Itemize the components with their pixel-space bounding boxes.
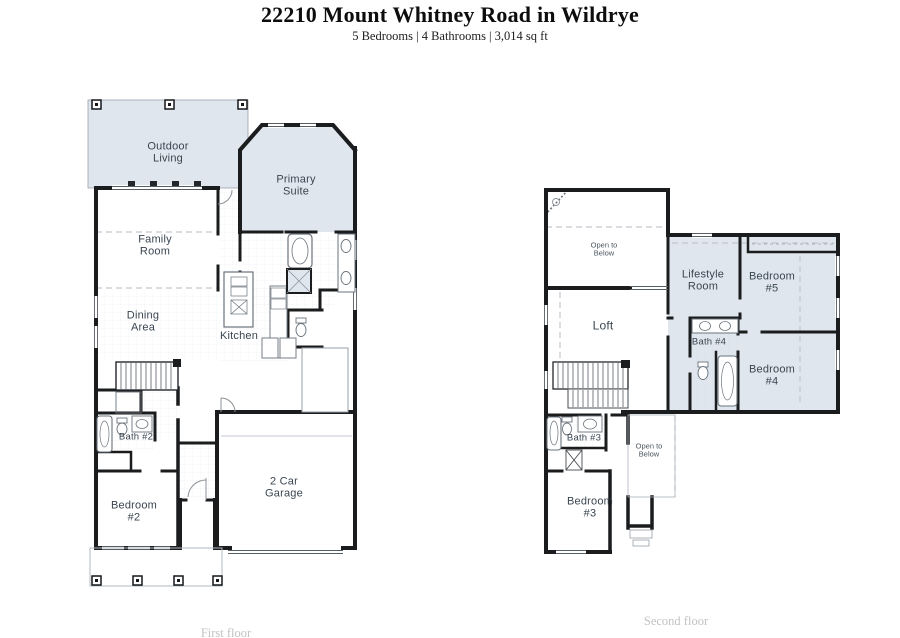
room-label-kitchen: Kitchen xyxy=(220,330,258,342)
room-label-primary-suite: PrimarySuite xyxy=(276,174,315,199)
floor1-caption: First floor xyxy=(201,626,251,638)
room-label-bath-3: Bath #3 xyxy=(567,434,601,445)
room-label-garage: 2 CarGarage xyxy=(265,476,303,501)
room-label-outdoor-living: OutdoorLiving xyxy=(147,141,188,166)
floor2-stairs xyxy=(553,360,630,408)
floor2-caption: Second floor xyxy=(644,614,708,629)
room-label-bedroom-2: Bedroom#2 xyxy=(111,500,157,525)
front-porch xyxy=(90,548,222,586)
attic-hatch xyxy=(546,190,568,214)
room-label-family-room: FamilyRoom xyxy=(138,234,172,259)
room-label-bedroom-4: Bedroom#4 xyxy=(749,364,795,389)
linen-closet xyxy=(566,450,582,470)
room-label-loft: Loft xyxy=(593,319,614,332)
room-label-bedroom-3: Bedroom#3 xyxy=(567,496,613,521)
room-label-dining-area: DiningArea xyxy=(127,310,159,335)
room-label-bath-2: Bath #2 xyxy=(119,433,153,444)
kitchen-island xyxy=(224,272,253,327)
room-label-bath-4: Bath #4 xyxy=(692,338,726,349)
room-label-bedroom-5: Bedroom#5 xyxy=(749,271,795,296)
mud-hall xyxy=(302,348,348,412)
room-label-lifestyle-room: LifestyleRoom xyxy=(682,269,724,294)
loft-railing xyxy=(630,287,668,290)
floorplan-page: 22210 Mount Whitney Road in Wildrye 5 Be… xyxy=(0,0,900,638)
shaft-steps xyxy=(630,530,652,546)
room-label-open-to-below-center: Open toBelow xyxy=(636,443,663,460)
room-label-open-to-below-top: Open toBelow xyxy=(591,242,618,259)
